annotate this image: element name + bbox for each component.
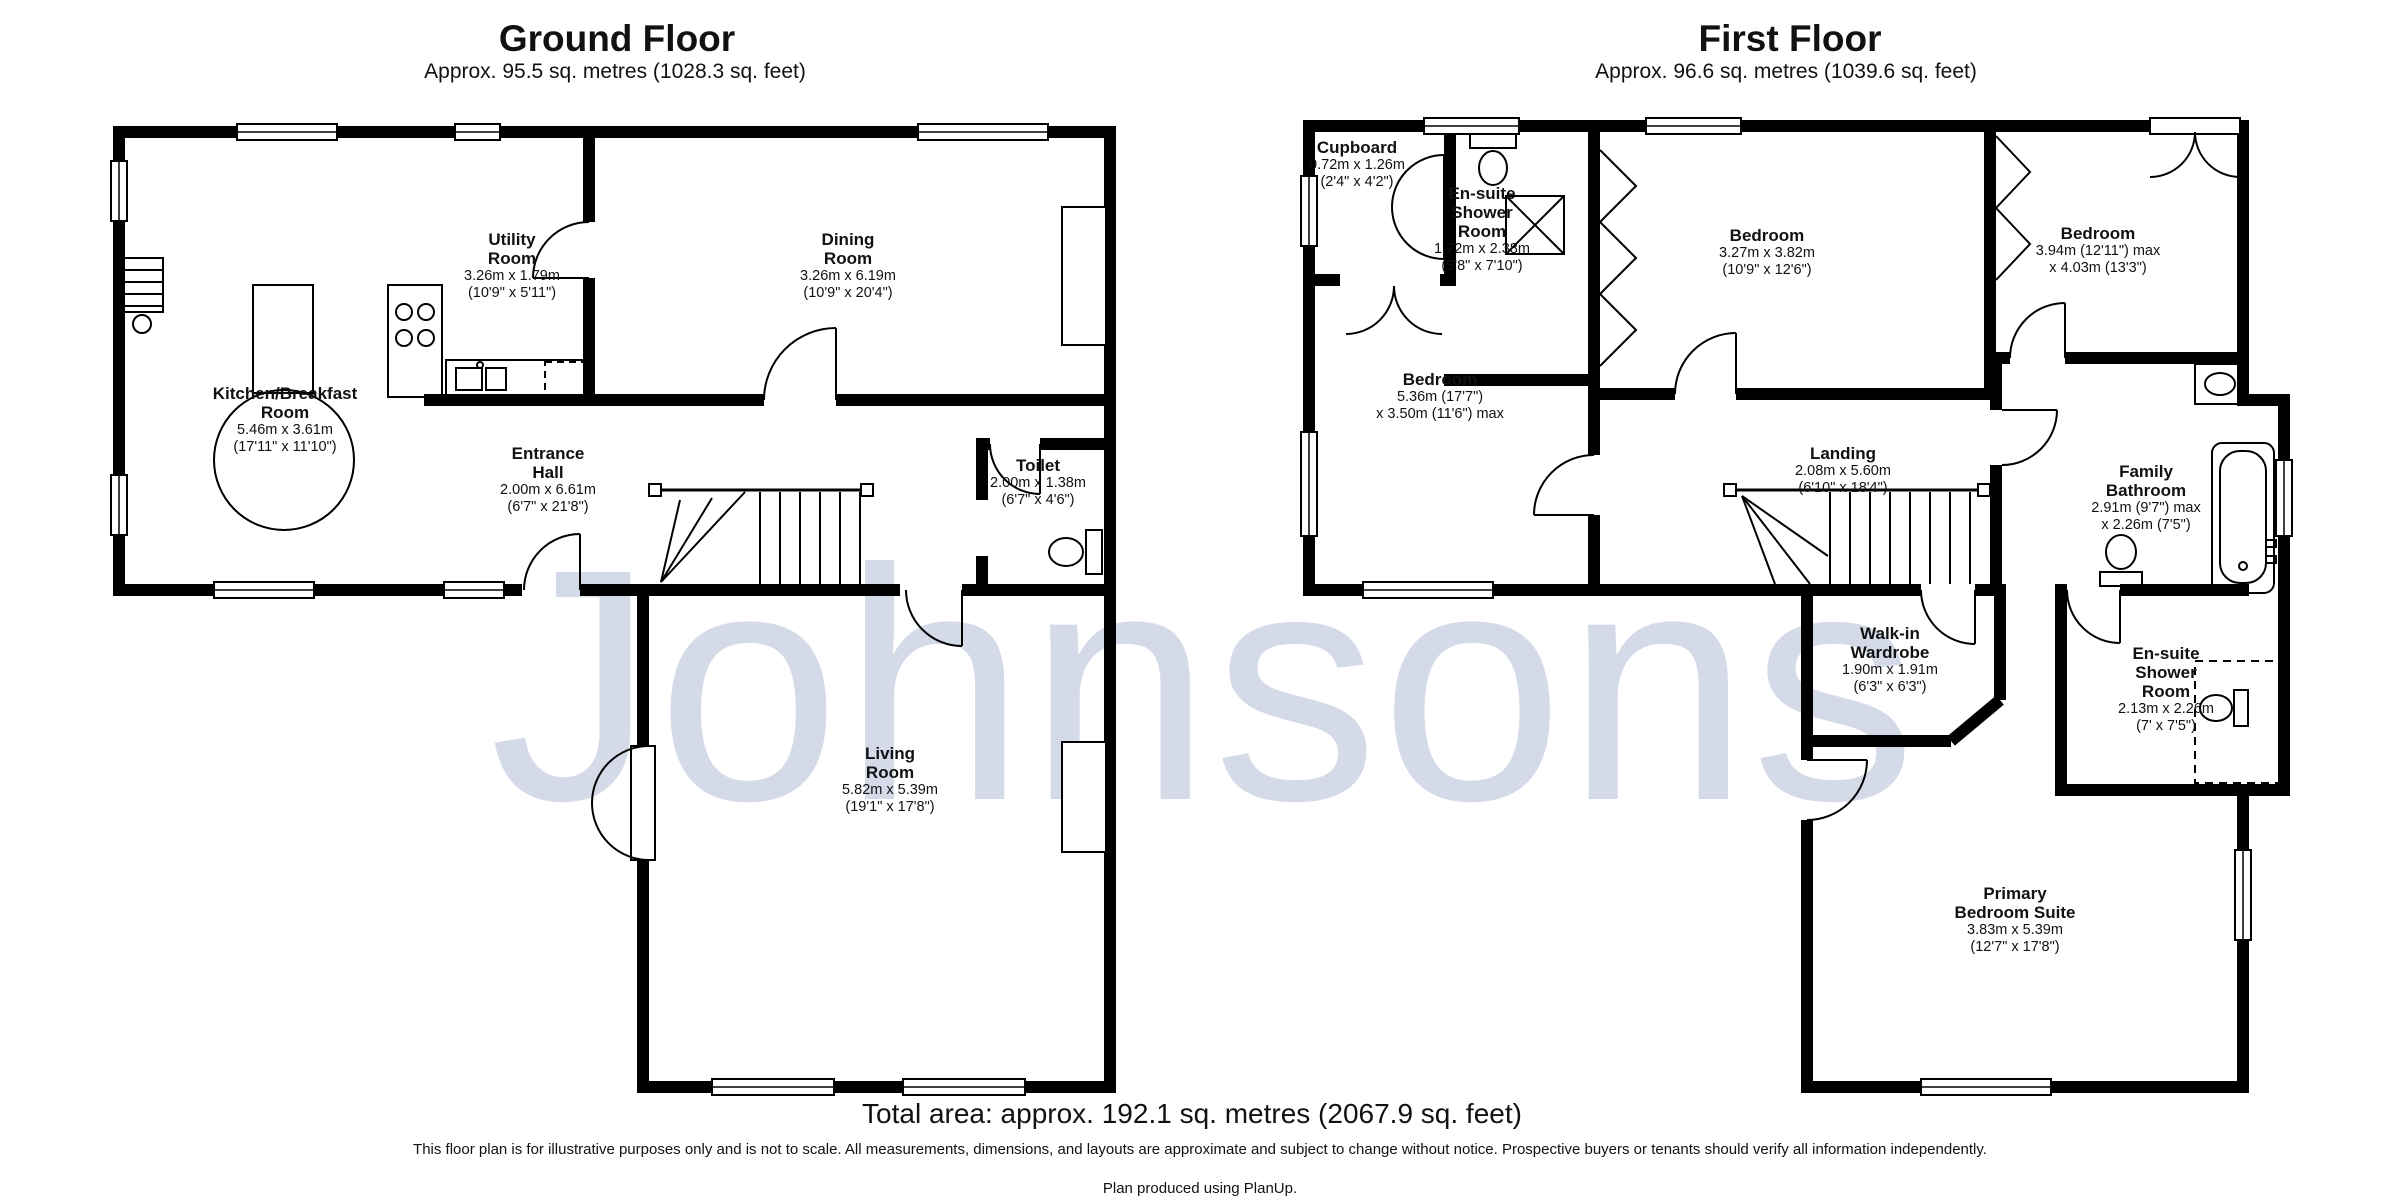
first-floor-title: First Floor [1699,18,1882,60]
room-label-landing: Landing 2.08m x 5.60m (6'10" x 18'4") [1795,444,1891,497]
room-label-bedroom-middle: Bedroom 3.27m x 3.82m (10'9" x 12'6") [1719,226,1815,279]
room-name: Family Bathroom [2091,462,2200,500]
room-name: Cupboard [1309,138,1405,157]
room-dims: 2.00m x 1.38m (6'7" x 4'6") [990,475,1086,509]
room-dims: 0.72m x 1.26m (2'4" x 4'2") [1309,157,1405,191]
room-name: Landing [1795,444,1891,463]
kitchen-island [253,285,313,393]
room-name: Toilet [990,456,1086,475]
sink-counter [446,360,586,398]
room-dims: 3.83m x 5.39m (12'7" x 17'8") [1955,922,2076,956]
floor-plan-drawing [0,0,2400,1200]
floor-plan-page: { "watermark": "Johnsons", "floors": [ {… [0,0,2400,1200]
room-dims: 1.90m x 1.91m (6'3" x 6'3") [1842,662,1938,696]
room-label-bedroom-right: Bedroom 3.94m (12'11") max x 4.03m (13'3… [2036,224,2161,277]
room-dims: 5.82m x 5.39m (19'1" x 17'8") [842,782,938,816]
room-label-cupboard: Cupboard 0.72m x 1.26m (2'4" x 4'2") [1309,138,1405,191]
room-dims: 5.46m x 3.61m (17'11" x 11'10") [213,422,358,456]
room-name: Primary Bedroom Suite [1955,884,2076,922]
room-dims: 3.26m x 6.19m (10'9" x 20'4") [800,268,896,302]
room-label-primary-bedroom: Primary Bedroom Suite 3.83m x 5.39m (12'… [1955,884,2076,956]
room-name: En-suite Shower Room [2118,644,2214,701]
first-floor-subtitle: Approx. 96.6 sq. metres (1039.6 sq. feet… [1595,60,1977,84]
room-dims: 2.13m x 2.26m (7' x 7'5") [2118,701,2214,735]
room-name: Entrance Hall [500,444,596,482]
room-name: Dining Room [800,230,896,268]
room-name: Kitchen/Breakfast Room [213,384,358,422]
ground-floor-subtitle: Approx. 95.5 sq. metres (1028.3 sq. feet… [424,60,806,84]
room-name: Bedroom [1719,226,1815,245]
room-dims: 1.72m x 2.38m (5'8" x 7'10") [1434,241,1530,275]
room-dims: 5.36m (17'7") x 3.50m (11'6") max [1376,389,1504,423]
first-floor-stairs [1724,484,1990,584]
room-label-toilet: Toilet 2.00m x 1.38m (6'7" x 4'6") [990,456,1086,509]
room-dims: 2.91m (9'7") max x 2.26m (7'5") [2091,500,2200,534]
room-dims: 2.08m x 5.60m (6'10" x 18'4") [1795,463,1891,497]
toilet-cistern [1086,530,1102,574]
room-label-bedroom-left: Bedroom 5.36m (17'7") x 3.50m (11'6") ma… [1376,370,1504,423]
planup-credit-text: Plan produced using PlanUp. [1103,1180,1297,1197]
room-label-walkin-wardrobe: Walk-in Wardrobe 1.90m x 1.91m (6'3" x 6… [1842,624,1938,696]
room-dims: 3.27m x 3.82m (10'9" x 12'6") [1719,245,1815,279]
room-label-family-bathroom: Family Bathroom 2.91m (9'7") max x 2.26m… [2091,462,2200,534]
ground-floor-walls [113,126,1116,1093]
room-label-kitchen-breakfast: Kitchen/Breakfast Room 5.46m x 3.61m (17… [213,384,358,456]
room-dims: 3.26m x 1.79m (10'9" x 5'11") [464,268,560,302]
closet-doors [1600,136,2030,366]
room-name: Bedroom [2036,224,2161,243]
ground-floor-title: Ground Floor [499,18,735,60]
toilet-bowl [1049,538,1083,566]
room-label-living: Living Room 5.82m x 5.39m (19'1" x 17'8"… [842,744,938,816]
total-area-text: Total area: approx. 192.1 sq. metres (20… [862,1098,1522,1130]
room-label-entrance-hall: Entrance Hall 2.00m x 6.61m (6'7" x 21'8… [500,444,596,516]
room-name: Living Room [842,744,938,782]
ground-stairs [649,484,873,584]
dishwasher [545,362,585,396]
room-name: Utility Room [464,230,560,268]
room-label-utility: Utility Room 3.26m x 1.79m (10'9" x 5'11… [464,230,560,302]
utility-sink [121,258,163,312]
room-name: En-suite Shower Room [1434,184,1530,241]
room-label-dining: Dining Room 3.26m x 6.19m (10'9" x 20'4"… [800,230,896,302]
room-name: Walk-in Wardrobe [1842,624,1938,662]
room-dims: 3.94m (12'11") max x 4.03m (13'3") [2036,243,2161,277]
room-name: Bedroom [1376,370,1504,389]
room-dims: 2.00m x 6.61m (6'7" x 21'8") [500,482,596,516]
room-label-ensuite-shower-bottom: En-suite Shower Room 2.13m x 2.26m (7' x… [2118,644,2214,735]
room-label-ensuite-shower-top: En-suite Shower Room 1.72m x 2.38m (5'8"… [1434,184,1530,275]
disclaimer-text: This floor plan is for illustrative purp… [238,1140,2163,1160]
